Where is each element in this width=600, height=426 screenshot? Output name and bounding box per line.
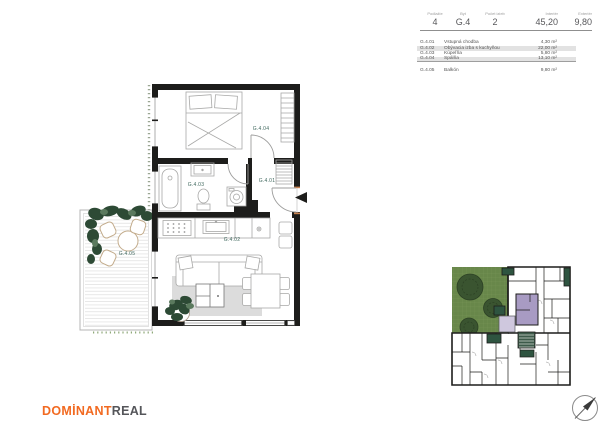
bathroom-door: [228, 164, 248, 184]
highlighted-unit-balcony: [499, 316, 515, 332]
outlet-symbol: [257, 227, 261, 231]
unit-summary-header-row: Podlažie Byt Počet izieb Interiér Exteri…: [420, 11, 592, 16]
washing-machine: [227, 187, 246, 206]
room-label-bedroom: G.4.04: [253, 126, 270, 132]
living-room: G.4.02: [158, 218, 292, 322]
kitchen-sink: [203, 221, 229, 234]
room-area: 13,10 m²: [533, 56, 573, 61]
apartment-floor-plan: G.4.05: [80, 84, 307, 333]
room-label-hall: G.4.01: [259, 178, 276, 184]
kitchen-counter: [158, 218, 270, 238]
legend-row: G.4.05 Balkón 9,80 m²: [417, 68, 576, 74]
bedroom-door: [251, 135, 274, 158]
room-area: 9,80 m²: [533, 68, 573, 73]
pillow: [189, 95, 212, 110]
room-code: G.4.05: [420, 68, 444, 73]
exterior-area-value: 9,80: [558, 17, 592, 27]
bedroom: G.4.04: [186, 92, 294, 149]
dining-table: [251, 274, 280, 308]
room-label-bathroom: G.4.03: [188, 182, 205, 188]
bed-blanket: [186, 113, 242, 148]
room-legend: G.4.01 Vstupná chodba 4,30 m² G.4.02 Obý…: [417, 40, 576, 74]
room-name: Balkón: [444, 68, 533, 73]
wardrobe: [281, 93, 294, 142]
floor-plan-sheet: G.4.05: [0, 0, 600, 426]
room-label-balcony: G.4.05: [119, 251, 136, 257]
col-label-unit: Byt: [450, 11, 476, 16]
room-code: G.4.01: [420, 40, 444, 45]
legend-row: G.4.01 Vstupná chodba 4,30 m²: [417, 40, 576, 46]
bedroom-window: [152, 96, 158, 148]
col-label-exterior: Exteriér: [558, 11, 592, 16]
col-label-interior: Interiér: [514, 11, 558, 16]
company-logo: DOMİNANTREAL: [42, 404, 147, 418]
interior-area-value: 45,20: [514, 17, 558, 27]
rooms-value: 2: [476, 17, 514, 27]
coffee-table: [196, 284, 224, 307]
balcony-table: [118, 231, 138, 251]
entrance-door: [272, 187, 300, 215]
room-name: Obývacia izba s kuchyňou: [444, 46, 533, 51]
bathroom-sink: [191, 163, 214, 176]
sofa-pillow: [178, 256, 193, 270]
toilet: [197, 189, 210, 210]
site-plan: [452, 267, 570, 385]
bathtub: [159, 166, 181, 211]
room-area: 4,30 m²: [533, 40, 573, 45]
unit-summary-table: Podlažie Byt Počet izieb Interiér Exteri…: [420, 11, 592, 31]
bathroom-window: [152, 170, 158, 205]
balcony: G.4.05: [80, 204, 153, 330]
balcony-door-window: [152, 250, 158, 308]
dining-chair: [280, 278, 290, 290]
room-code: G.4.02: [420, 46, 444, 51]
tall-cabinet: [279, 222, 292, 248]
pillow: [215, 95, 238, 110]
legend-row: G.4.04 Spálňa 13,10 m²: [417, 57, 576, 63]
floor-value: 4: [420, 17, 450, 27]
room-label-living: G.4.02: [224, 237, 241, 243]
stairwell: [518, 332, 535, 357]
dining-chair: [280, 294, 290, 306]
col-label-rooms: Počet izieb: [476, 11, 514, 16]
sofa-pillow: [245, 256, 260, 270]
room-code: G.4.04: [420, 56, 444, 61]
room-area: 22,00 m²: [533, 46, 573, 51]
logo-secondary-text: REAL: [112, 404, 147, 418]
room-name: Vstupná chodba: [444, 40, 533, 45]
compass-icon: [573, 396, 598, 421]
col-label-floor: Podlažie: [420, 11, 450, 16]
living-room-windows: [183, 321, 295, 325]
unit-value: G.4: [450, 17, 476, 27]
logo-primary-text: DOMİNANT: [42, 404, 112, 418]
bathroom: G.4.03: [159, 163, 246, 211]
unit-summary-value-row: 4 G.4 2 45,20 9,80: [420, 17, 592, 27]
room-name: Spálňa: [444, 56, 533, 61]
stove-burners: [167, 223, 185, 233]
